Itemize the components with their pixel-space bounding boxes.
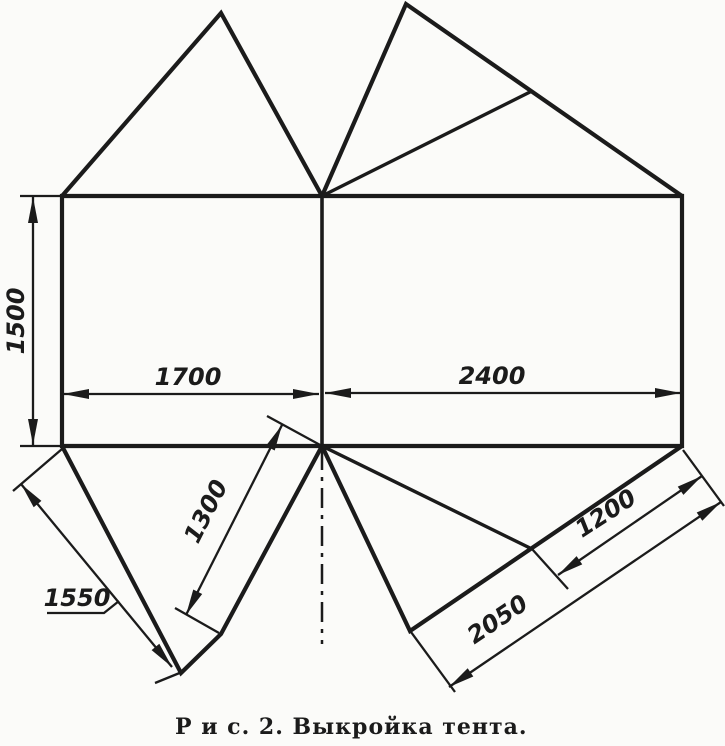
dimension-2400-arrowhead [655, 388, 681, 398]
bottom-right-crease [322, 446, 532, 549]
outline-top-left-flap [62, 13, 322, 196]
ext-1550-bottom [155, 672, 182, 683]
dimension-2050-arrowhead [697, 502, 721, 521]
dimension-1200-arrowhead [558, 556, 582, 575]
figure-container: 1500170024001300155012002050 Р и с. 2. В… [0, 0, 725, 746]
dimension-1700-arrowhead [293, 389, 319, 399]
dimension-2400-label: 2400 [459, 362, 526, 390]
dimension-1500-arrowhead [28, 197, 38, 223]
dimension-1300-arrowhead [186, 590, 202, 615]
ext-1200-left [532, 549, 568, 589]
tent-pattern-drawing: 1500170024001300155012002050 [0, 0, 725, 746]
ext-1300-bottom [175, 608, 219, 633]
dimension-1200-arrowhead [678, 476, 702, 495]
dimension-1500-arrowhead [28, 419, 38, 445]
ext-right-corner [683, 450, 724, 506]
dimension-1700-label: 1700 [155, 363, 222, 391]
outline-bottom-left-flap [62, 446, 322, 673]
dimension-2400-arrowhead [325, 388, 351, 398]
outline-main-rectangle [62, 196, 682, 446]
dimension-1700-arrowhead [63, 389, 89, 399]
ext-2050-left [411, 632, 455, 692]
dimension-2050-label: 2050 [462, 589, 533, 650]
dimension-1550-label: 1550 [44, 584, 111, 612]
dimension-1500-label: 1500 [2, 288, 30, 355]
top-right-crease [322, 91, 532, 196]
figure-caption: Р и с. 2. Выкройка тента. [175, 714, 515, 740]
dimension-2050-arrowhead [449, 668, 473, 687]
page: { "figure": { "type": "technical-pattern… [0, 0, 725, 746]
